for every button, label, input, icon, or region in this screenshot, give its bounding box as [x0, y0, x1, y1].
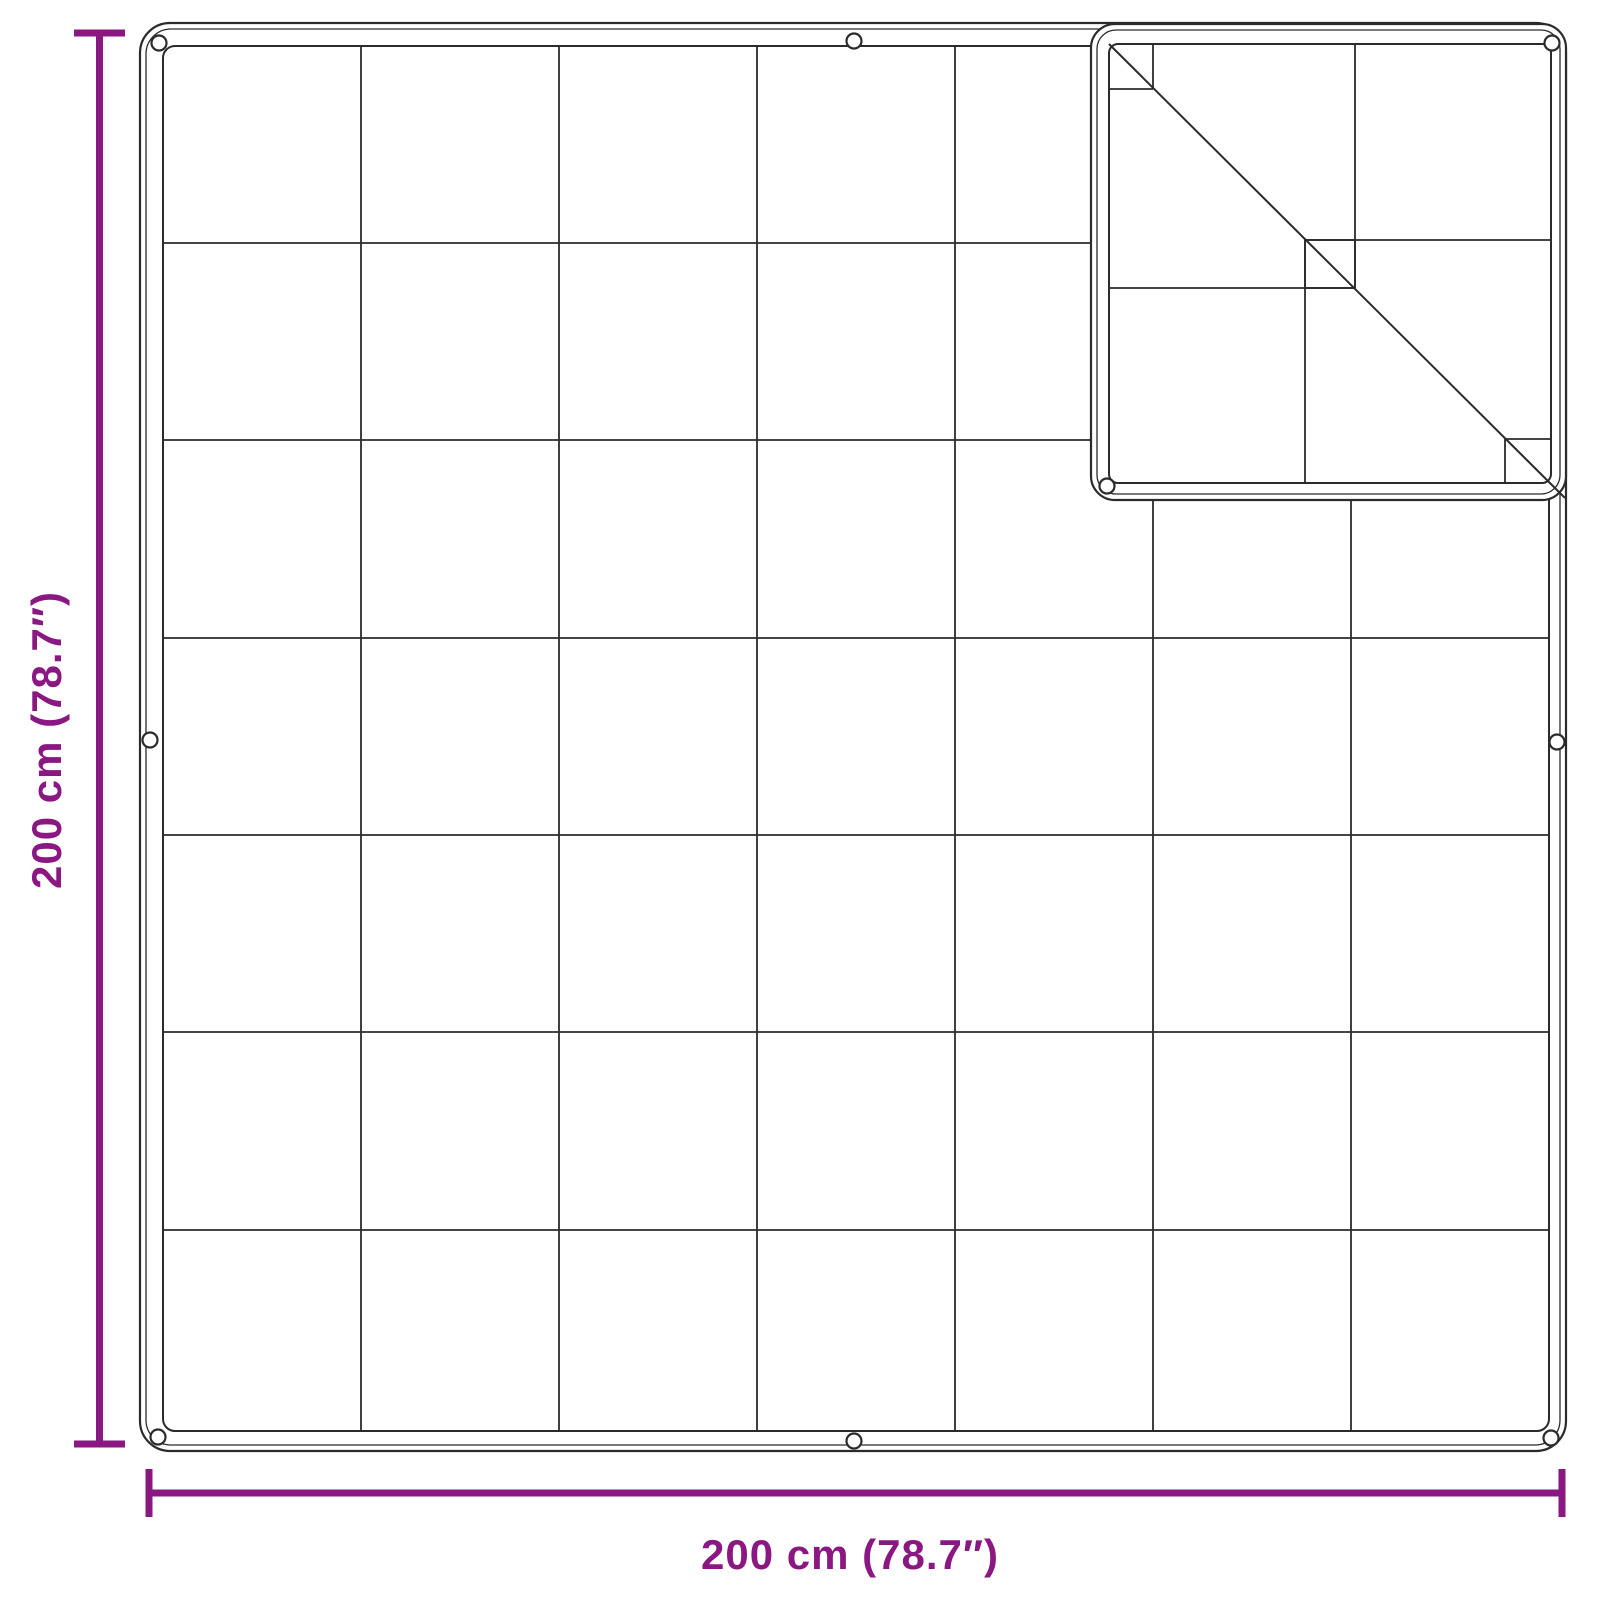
width-dimension-label: 200 cm (78.7″) — [500, 1530, 1200, 1580]
inset-grommet-bottom-left — [1100, 479, 1115, 494]
grommet-bottom-left — [151, 1430, 166, 1445]
grommet-top-left — [152, 36, 167, 51]
grommet-right-middle — [1550, 735, 1565, 750]
height-dimension-line — [74, 33, 125, 1444]
grommet-top-center — [847, 34, 862, 49]
grommet-bottom-right — [1544, 1431, 1559, 1446]
width-dimension-line — [149, 1469, 1562, 1517]
product-dimension-diagram: 200 cm (78.7″) 200 cm (78.7″) — [0, 0, 1600, 1600]
inset-grommet-top-right — [1545, 36, 1560, 51]
corner-detail-inset — [1091, 24, 1566, 500]
height-dimension-label: 200 cm (78.7″) — [22, 390, 72, 1090]
diagram-canvas — [0, 0, 1600, 1600]
grommet-bottom-center — [847, 1434, 862, 1449]
grommet-left-middle — [143, 733, 158, 748]
